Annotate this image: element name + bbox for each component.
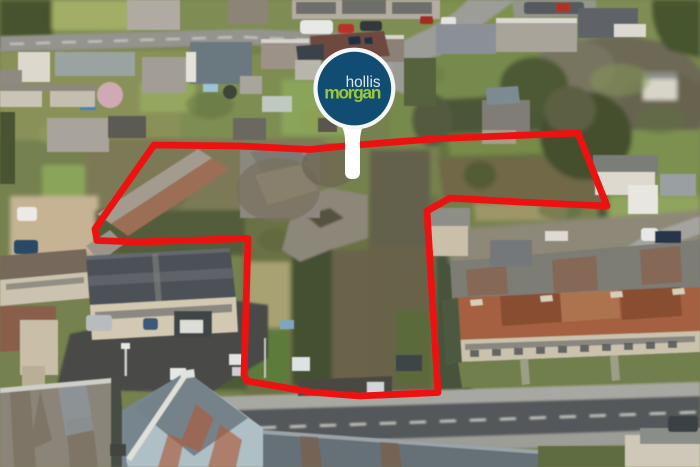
svg-text:morgan: morgan <box>324 83 380 103</box>
